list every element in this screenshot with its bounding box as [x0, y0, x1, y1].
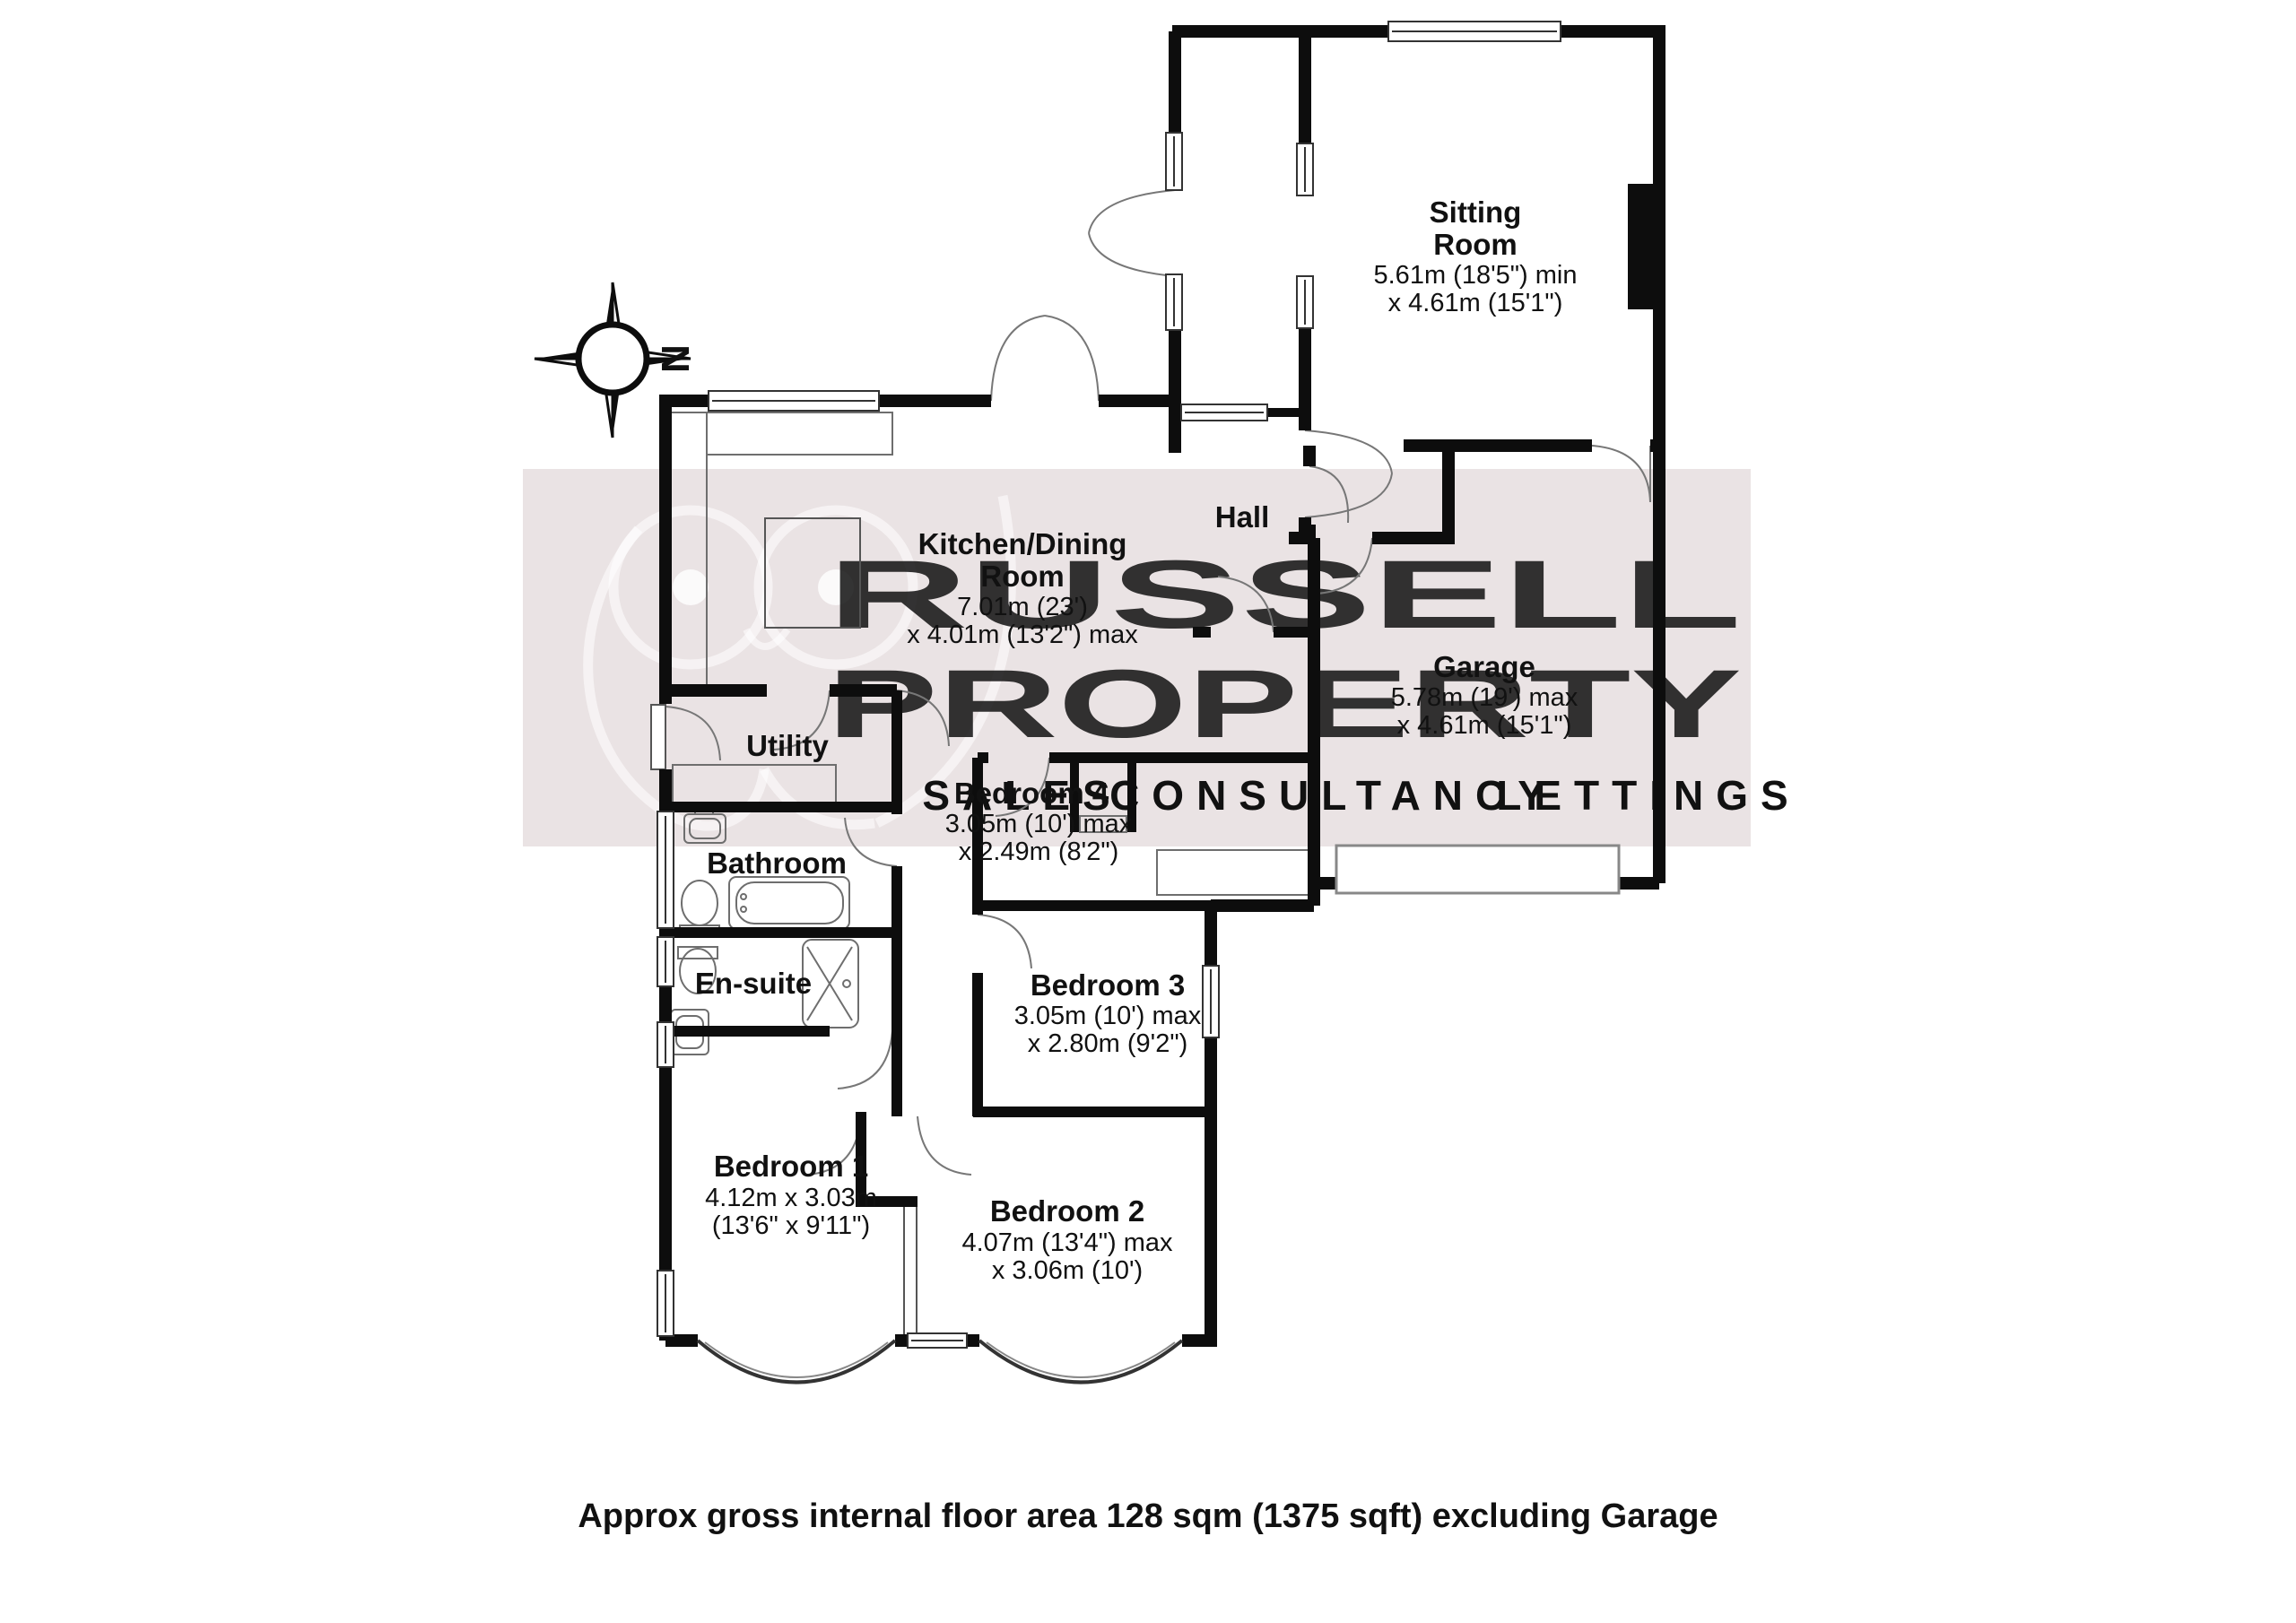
label-kitchen: Kitchen/Dining: [918, 527, 1127, 560]
label-utility: Utility: [746, 729, 829, 762]
dims-bedroom4-2: x 2.49m (8'2"): [959, 838, 1119, 866]
watermark-line2: PROPERTY: [827, 649, 1742, 758]
dims-bedroom2-1: 4.07m (13'4") max: [961, 1228, 1173, 1257]
dims-kitchen-1: 7.01m (23'): [957, 593, 1088, 621]
label-hall: Hall: [1215, 500, 1270, 534]
garage-door: [1336, 846, 1619, 893]
floor-area-caption: Approx gross internal floor area 128 sqm…: [578, 1497, 1718, 1535]
label-bathroom: Bathroom: [707, 846, 847, 880]
dims-garage-1: 5.78m (19') max: [1391, 683, 1578, 712]
label-kitchen-2: Room: [980, 560, 1065, 593]
label-bedroom2: Bedroom 2: [990, 1194, 1144, 1228]
label-ensuite: En-suite: [695, 967, 812, 1000]
watermark-sub-lettings: LETTINGS: [1496, 772, 1800, 819]
dims-sitting-room-2: x 4.61m (15'1"): [1388, 289, 1563, 317]
compass-icon: N: [535, 282, 697, 438]
dims-bedroom3-2: x 2.80m (9'2"): [1028, 1029, 1188, 1058]
dims-bedroom1-1: 4.12m x 3.03m: [705, 1184, 877, 1212]
floorplan-drawing: RUSSELL PROPERTY SALES CONSULTANCY LETTI…: [0, 0, 2296, 1623]
label-bedroom1: Bedroom 1: [714, 1150, 868, 1183]
compass-north-label: N: [653, 344, 697, 373]
label-bedroom4: Bedroom 4: [954, 777, 1109, 810]
dims-sitting-room-1: 5.61m (18'5") min: [1374, 261, 1578, 290]
dims-bedroom2-2: x 3.06m (10'): [992, 1256, 1143, 1285]
watermark-band: RUSSELL PROPERTY SALES CONSULTANCY LETTI…: [523, 469, 1801, 846]
dims-bedroom4-1: 3.05m (10') max: [945, 810, 1133, 838]
label-bedroom3: Bedroom 3: [1031, 968, 1185, 1002]
dims-bedroom1-2: (13'6" x 9'11"): [712, 1211, 870, 1240]
label-sitting-room-2: Room: [1433, 228, 1518, 261]
label-sitting-room: Sitting: [1430, 195, 1522, 229]
dims-kitchen-2: x 4.01m (13'2") max: [907, 621, 1138, 649]
label-garage: Garage: [1433, 650, 1535, 683]
watermark-sub-consultancy: CONSULTANCY: [1109, 772, 1558, 819]
dims-garage-2: x 4.61m (15'1"): [1397, 711, 1572, 740]
dims-bedroom3-1: 3.05m (10') max: [1014, 1002, 1202, 1030]
floorplan-page: RUSSELL PROPERTY SALES CONSULTANCY LETTI…: [0, 0, 2296, 1623]
chimney-breast: [1628, 184, 1662, 309]
